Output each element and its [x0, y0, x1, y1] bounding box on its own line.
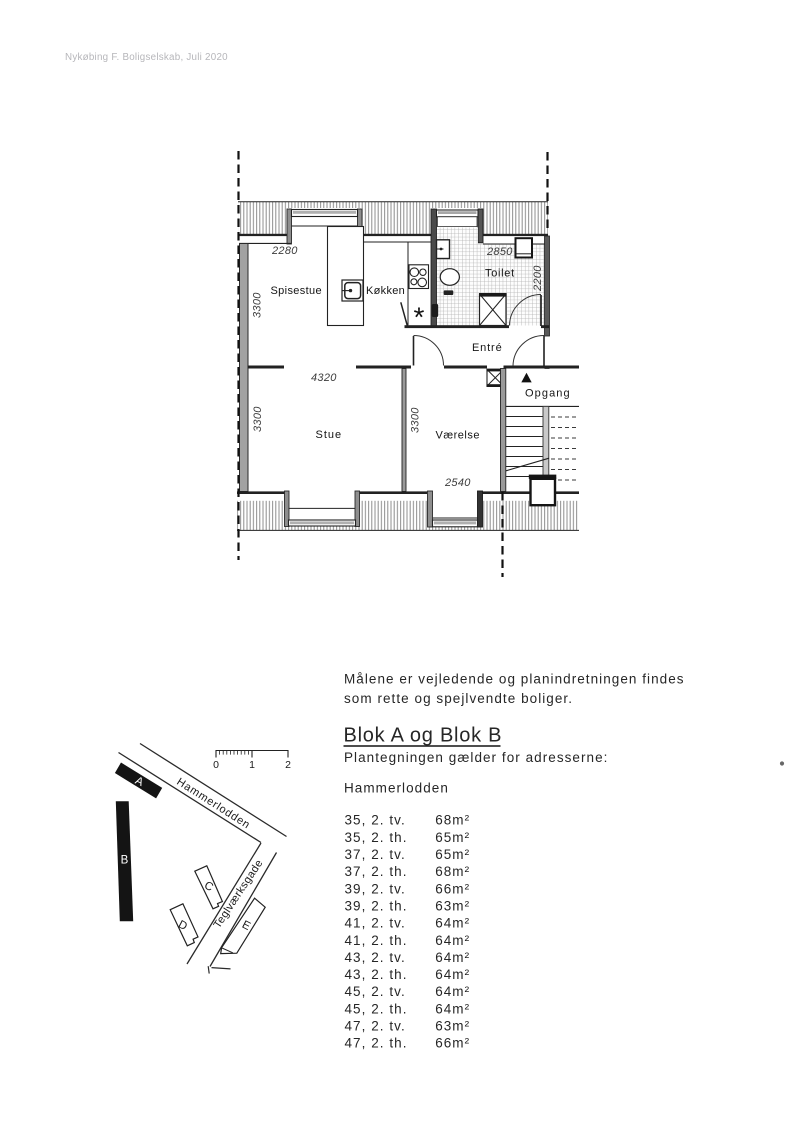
svg-text:43, 2. th.: 43, 2. th. — [345, 967, 408, 982]
svg-text:68m²: 68m² — [435, 813, 470, 828]
svg-text:39, 2. th.: 39, 2. th. — [345, 899, 408, 914]
svg-text:66m²: 66m² — [435, 1036, 470, 1051]
svg-text:64m²: 64m² — [435, 933, 470, 948]
svg-text:41, 2. th.: 41, 2. th. — [345, 933, 408, 948]
svg-text:Toilet: Toilet — [485, 268, 515, 280]
svg-text:2200: 2200 — [532, 265, 544, 292]
svg-text:Opgang: Opgang — [525, 387, 571, 399]
svg-text:3300: 3300 — [252, 292, 264, 318]
svg-text:2540: 2540 — [444, 477, 471, 489]
svg-text:2280: 2280 — [271, 245, 298, 257]
svg-text:37, 2. tv.: 37, 2. tv. — [345, 847, 406, 862]
svg-text:64m²: 64m² — [435, 984, 470, 999]
svg-text:Hammerlodden: Hammerlodden — [174, 776, 252, 832]
svg-text:37, 2. th.: 37, 2. th. — [345, 864, 408, 879]
svg-text:0: 0 — [213, 759, 219, 771]
svg-text:45, 2. th.: 45, 2. th. — [345, 1001, 408, 1016]
svg-text:Entré: Entré — [472, 342, 503, 354]
svg-text:Køkken: Køkken — [366, 285, 405, 297]
svg-text:64m²: 64m² — [435, 967, 470, 982]
svg-text:2850: 2850 — [486, 246, 513, 258]
svg-text:2: 2 — [285, 759, 291, 771]
svg-text:Blok A og Blok B: Blok A og Blok B — [344, 725, 503, 747]
svg-text:4320: 4320 — [311, 372, 337, 384]
svg-text:64m²: 64m² — [435, 1001, 470, 1016]
svg-text:47, 2. tv.: 47, 2. tv. — [345, 1019, 406, 1034]
svg-text:Stue: Stue — [316, 429, 343, 441]
svg-text:64m²: 64m² — [435, 916, 470, 931]
svg-text:Spisestue: Spisestue — [271, 285, 322, 297]
svg-text:Målene er vejledende og planin: Målene er vejledende og planindretningen… — [344, 672, 685, 687]
svg-text:3300: 3300 — [410, 407, 422, 433]
svg-text:66m²: 66m² — [435, 881, 470, 896]
svg-text:63m²: 63m² — [435, 1019, 470, 1034]
svg-text:35, 2. th.: 35, 2. th. — [345, 830, 408, 845]
svg-text:45, 2. tv.: 45, 2. tv. — [345, 984, 406, 999]
svg-text:Plantegningen gælder for adres: Plantegningen gælder for adresserne: — [344, 750, 608, 765]
svg-text:65m²: 65m² — [435, 847, 470, 862]
svg-text:68m²: 68m² — [435, 864, 470, 879]
svg-text:1: 1 — [249, 759, 255, 771]
svg-text:41, 2. tv.: 41, 2. tv. — [345, 916, 406, 931]
svg-text:3300: 3300 — [252, 406, 264, 432]
svg-text:47, 2. th.: 47, 2. th. — [345, 1036, 408, 1051]
svg-text:65m²: 65m² — [435, 830, 470, 845]
svg-text:som rette og spejlvendte bolig: som rette og spejlvendte boliger. — [344, 691, 573, 706]
svg-text:63m²: 63m² — [435, 899, 470, 914]
svg-text:B: B — [121, 855, 129, 867]
svg-text:64m²: 64m² — [435, 950, 470, 965]
svg-text:Hammerlodden: Hammerlodden — [344, 781, 449, 796]
svg-text:43, 2. tv.: 43, 2. tv. — [345, 950, 406, 965]
svg-text:Nykøbing F. Boligselskab, Juli: Nykøbing F. Boligselskab, Juli 2020 — [65, 52, 228, 63]
svg-text:35, 2. tv.: 35, 2. tv. — [345, 813, 406, 828]
svg-text:39, 2. tv.: 39, 2. tv. — [345, 881, 406, 896]
svg-text:Værelse: Værelse — [436, 430, 480, 442]
